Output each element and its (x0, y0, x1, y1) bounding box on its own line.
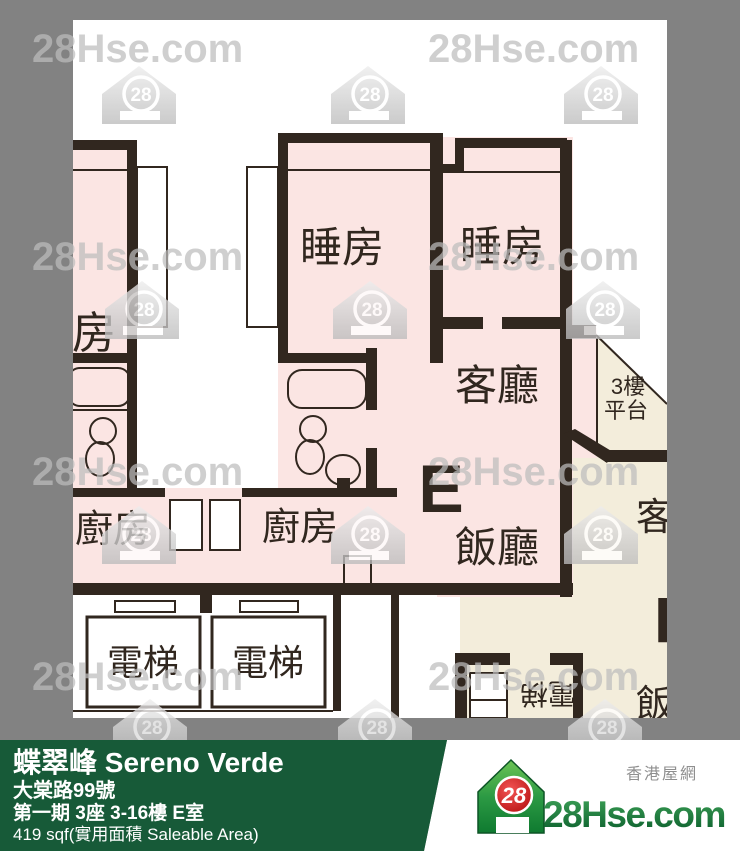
room-label-bedroom-1: 睡房 (300, 224, 384, 271)
svg-text:28: 28 (130, 85, 151, 106)
svg-text:28: 28 (359, 525, 380, 546)
brand-site-name: 28Hse.com (543, 794, 725, 835)
room-label-living: 客廳 (455, 362, 539, 409)
room-label-kitchen-mid: 廚房 (262, 507, 338, 549)
svg-text:28: 28 (359, 85, 380, 106)
unit-info: 第一期 3座 3-16樓 E室 (13, 801, 204, 824)
room-label-dining: 飯廳 (455, 524, 539, 571)
floorplan-image: 睡房 睡房 睡房 客廳 E 飯廳 廚房 廚房 電梯 電梯 3樓 平台 客廳 F … (0, 0, 740, 851)
svg-text:28: 28 (130, 525, 151, 546)
watermark-text: 28Hse.com (428, 235, 639, 279)
platform-label-line1: 3樓 (611, 374, 645, 399)
svg-text:28: 28 (141, 718, 162, 739)
svg-text:28: 28 (592, 85, 613, 106)
lift-door-2 (240, 601, 298, 612)
brand-badge-number: 28 (501, 783, 527, 808)
svg-text:28: 28 (361, 300, 382, 321)
brand-house-door (496, 817, 529, 833)
watermark-text: 28Hse.com (32, 450, 243, 494)
bay-window-main (247, 167, 278, 327)
watermark-text: 28Hse.com (32, 27, 243, 71)
watermark-text: 28Hse.com (32, 655, 243, 699)
watermark-text: 28Hse.com (428, 655, 639, 699)
floorplan-page: 睡房 睡房 睡房 客廳 E 飯廳 廚房 廚房 電梯 電梯 3樓 平台 客廳 F … (0, 0, 740, 851)
brand-site-chinese: 香港屋網 (626, 765, 698, 783)
lift-door-1 (115, 601, 175, 612)
svg-text:28: 28 (366, 718, 387, 739)
building-address: 大棠路99號 (13, 778, 115, 802)
svg-text:28: 28 (596, 718, 617, 739)
watermark-text: 28Hse.com (428, 27, 639, 71)
watermark-text: 28Hse.com (32, 235, 243, 279)
saleable-area: 419 sqf(實用面積 Saleable Area) (13, 825, 259, 844)
watermark-text: 28Hse.com (428, 450, 639, 494)
svg-text:28: 28 (594, 300, 615, 321)
svg-text:28: 28 (133, 300, 154, 321)
platform-label-line2: 平台 (604, 398, 648, 423)
svg-text:28: 28 (592, 525, 613, 546)
building-name: 蝶翠峰 Sereno Verde (13, 747, 284, 778)
kitchen-cabinet-2 (210, 500, 240, 550)
floor-plan: 睡房 睡房 睡房 客廳 E 飯廳 廚房 廚房 電梯 電梯 3樓 平台 客廳 F … (28, 20, 712, 726)
